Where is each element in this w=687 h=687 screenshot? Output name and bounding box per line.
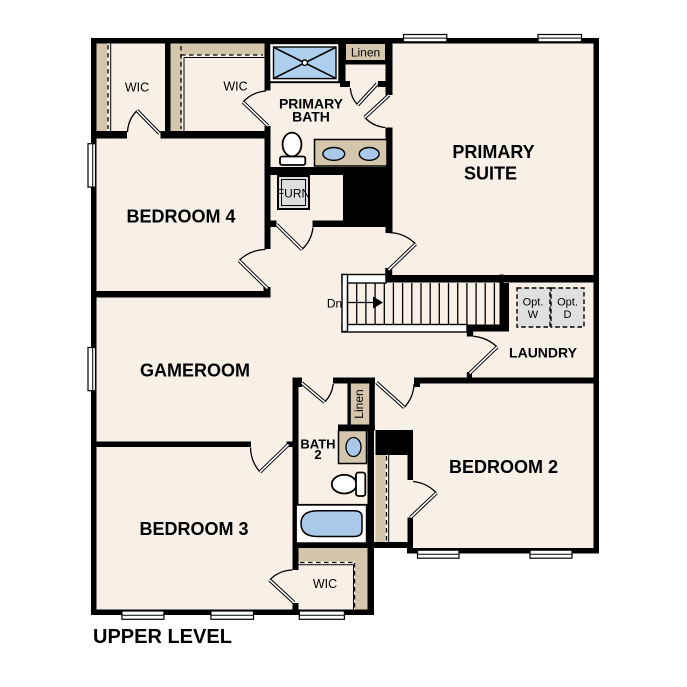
- svg-text:Linen: Linen: [351, 46, 380, 60]
- svg-text:Dn: Dn: [327, 297, 342, 311]
- svg-text:2: 2: [314, 447, 321, 462]
- svg-text:WIC: WIC: [125, 81, 149, 95]
- svg-text:SUITE: SUITE: [464, 163, 517, 183]
- svg-text:BEDROOM 3: BEDROOM 3: [139, 519, 248, 539]
- svg-text:UPPER LEVEL: UPPER LEVEL: [93, 626, 232, 648]
- svg-text:BEDROOM 2: BEDROOM 2: [449, 457, 558, 477]
- svg-text:FURN: FURN: [277, 187, 310, 201]
- svg-text:W: W: [528, 309, 539, 321]
- svg-text:Linen: Linen: [352, 389, 366, 418]
- svg-text:Opt.: Opt.: [523, 297, 544, 309]
- svg-text:BATH: BATH: [292, 109, 330, 125]
- svg-text:WIC: WIC: [313, 577, 337, 591]
- svg-text:LAUNDRY: LAUNDRY: [509, 345, 578, 361]
- svg-text:D: D: [564, 309, 572, 321]
- svg-text:GAMEROOM: GAMEROOM: [140, 361, 250, 381]
- svg-text:BEDROOM 4: BEDROOM 4: [126, 207, 235, 227]
- svg-text:PRIMARY: PRIMARY: [452, 142, 534, 162]
- svg-text:Opt.: Opt.: [557, 297, 578, 309]
- svg-text:WIC: WIC: [223, 80, 247, 94]
